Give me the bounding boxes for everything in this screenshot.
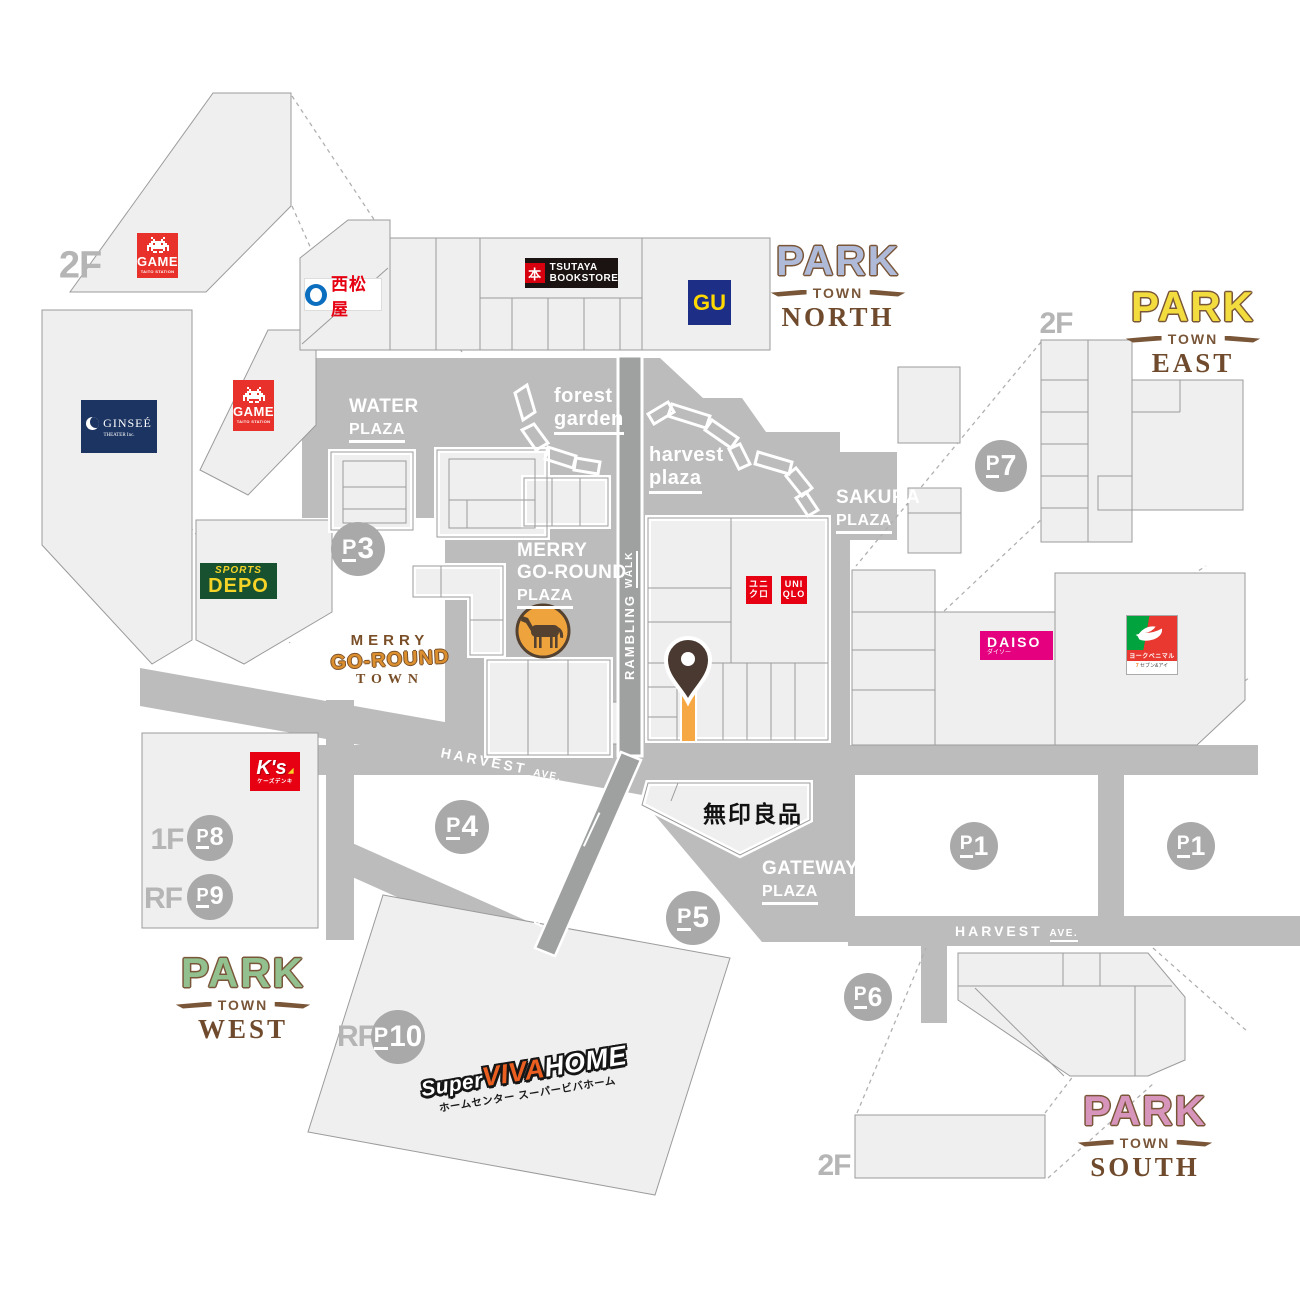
parking-badge-p3[interactable]: P3 bbox=[331, 522, 385, 576]
road-west-vertical bbox=[326, 700, 354, 940]
store-nishimatsuya[interactable]: 西松屋 bbox=[304, 278, 382, 311]
park-town-south-logo: PARK TOWN SOUTH bbox=[1078, 1090, 1213, 1181]
wing-left-icon bbox=[771, 290, 807, 297]
store-uniqlo-jp[interactable]: ユニクロ bbox=[746, 576, 772, 604]
harvest-plaza-label: harvestplaza bbox=[649, 444, 724, 494]
parking-badge-p9[interactable]: P9 bbox=[187, 874, 233, 920]
wing-right-icon bbox=[1224, 336, 1260, 343]
building-nw-spike bbox=[70, 93, 291, 292]
rabbit-mascot-icon bbox=[305, 284, 327, 306]
park-town-north-logo: PARK TOWN NORTH bbox=[771, 240, 906, 331]
building-tsutaya bbox=[480, 238, 642, 350]
park-town-west-logo: PARK TOWN WEST bbox=[176, 952, 311, 1043]
merry-go-round-town-logo: MERRY GO-ROUND TOWN bbox=[330, 633, 449, 687]
wing-left-icon bbox=[1126, 336, 1162, 343]
wing-left-icon bbox=[1078, 1140, 1114, 1147]
building-nw-tall bbox=[42, 310, 192, 664]
wing-right-icon bbox=[869, 290, 905, 297]
rambling-walk-label-upper: RAMBLING WALK bbox=[622, 450, 637, 680]
building-north-mid bbox=[390, 238, 480, 350]
forest-garden-label: forestgarden bbox=[554, 385, 624, 435]
building-south-2f bbox=[855, 1115, 1045, 1178]
sakura-plaza-label: SAKURAPLAZA bbox=[836, 487, 920, 534]
floor-label-2f-south: 2F bbox=[817, 1149, 850, 1183]
moon-icon bbox=[86, 417, 99, 430]
floor-label-rf-viva: RF bbox=[337, 1020, 375, 1054]
space-invader-icon bbox=[147, 237, 169, 253]
store-tsutaya-bookstore[interactable]: 本 TSUTAYABOOKSTORE bbox=[525, 258, 618, 288]
road-east-connector bbox=[1098, 775, 1124, 920]
parking-badge-p8[interactable]: P8 bbox=[187, 815, 233, 861]
merry-go-round-plaza-label: MERRYGO-ROUND PLAZA bbox=[517, 540, 627, 609]
store-ginsee-theater[interactable]: GINSEÉ THEATER Inc. bbox=[81, 400, 157, 453]
building-sakura-1 bbox=[898, 367, 960, 443]
parking-badge-p5[interactable]: P5 bbox=[666, 891, 720, 945]
parking-badge-p1-west[interactable]: P1 bbox=[950, 822, 998, 870]
floor-label-2f-east: 2F bbox=[1039, 307, 1072, 341]
parking-badge-p6[interactable]: P6 bbox=[844, 973, 892, 1021]
building-east-column bbox=[1041, 340, 1132, 542]
store-muji[interactable]: 無印良品 bbox=[703, 795, 803, 829]
building-east-big bbox=[1132, 380, 1243, 510]
parking-badge-p7[interactable]: P7 bbox=[975, 440, 1027, 492]
store-daiso[interactable]: DAISO ダイソー bbox=[980, 631, 1053, 660]
building-south-1 bbox=[958, 953, 1185, 1076]
park-town-east-logo: PARK TOWN EAST bbox=[1126, 286, 1261, 377]
floor-label-1f-west: 1F bbox=[150, 823, 183, 857]
building-east-left-col bbox=[852, 570, 935, 745]
road-p6-stub bbox=[921, 943, 947, 1023]
gateway-plaza-label: GATEWAYPLAZA bbox=[762, 858, 858, 905]
harvest-ave-label-east: HARVEST AVE. bbox=[955, 923, 1078, 939]
mall-map: 2F 2F 2F 1F RF RF P3 P4 P5 P6 P7 P8 P9 P… bbox=[0, 0, 1300, 1300]
store-sports-depo[interactable]: SPORTS DEPO bbox=[200, 563, 277, 599]
space-invader-icon bbox=[243, 387, 265, 403]
wing-right-icon bbox=[1176, 1140, 1212, 1147]
wing-left-icon bbox=[176, 1002, 212, 1009]
floor-label-rf-west: RF bbox=[144, 882, 182, 916]
store-ks-denki[interactable]: K's ケーズデンキ bbox=[250, 752, 300, 791]
parking-badge-p10[interactable]: P10 bbox=[371, 1010, 425, 1064]
store-uniqlo-en[interactable]: UNIQLO bbox=[781, 576, 807, 604]
store-game-taito-1[interactable]: GAME TAITO STATION bbox=[137, 233, 178, 278]
parking-badge-p1-east[interactable]: P1 bbox=[1167, 822, 1215, 870]
wing-right-icon bbox=[274, 1002, 310, 1009]
tsutaya-mark-icon: 本 bbox=[525, 263, 545, 283]
water-plaza-label: WATERPLAZA bbox=[349, 396, 419, 443]
store-game-taito-2[interactable]: GAME TAITO STATION bbox=[233, 380, 274, 431]
store-gu[interactable]: GU bbox=[688, 280, 731, 325]
store-york-benimaru[interactable]: ヨークベニマル 7 セブン&アイ bbox=[1126, 615, 1178, 675]
floor-label-2f-northwest: 2F bbox=[59, 245, 101, 288]
dove-icon bbox=[1132, 620, 1172, 646]
parking-badge-p4[interactable]: P4 bbox=[435, 800, 489, 854]
carousel-horse-icon bbox=[517, 605, 569, 657]
